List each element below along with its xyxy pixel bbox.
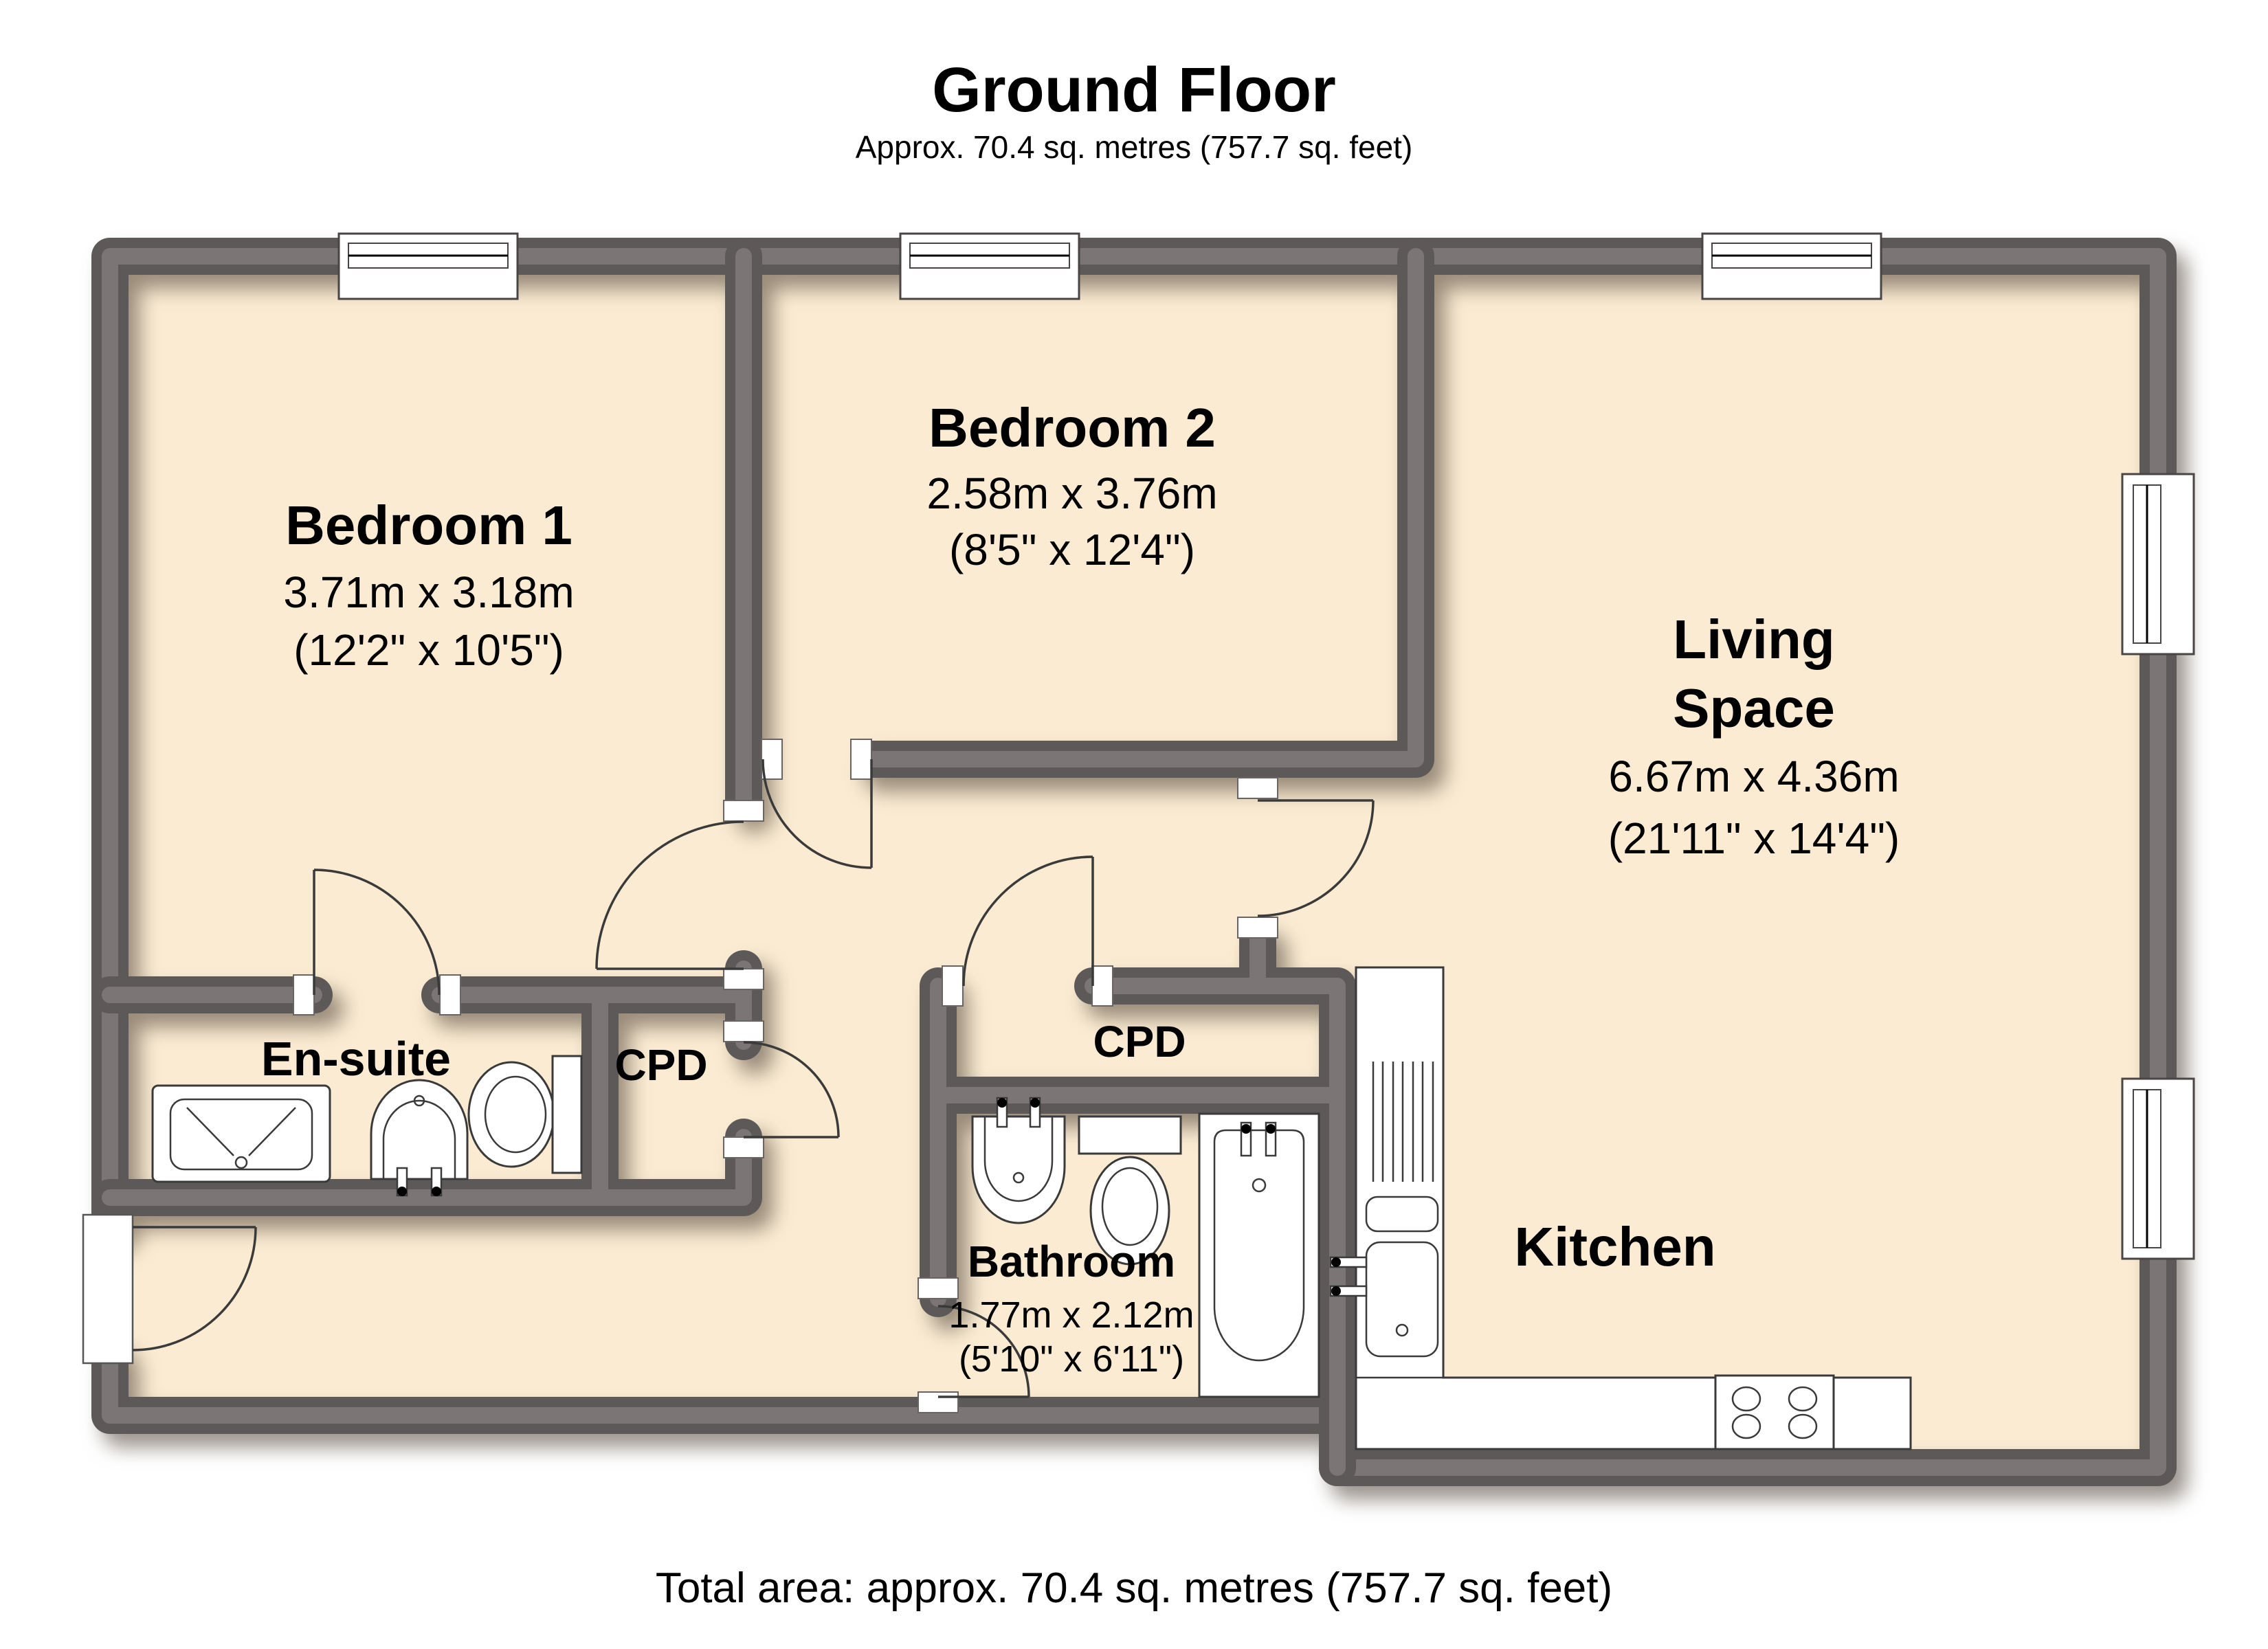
bathtub-icon	[1199, 1114, 1319, 1397]
room-dims-m: 6.67m x 4.36m	[1608, 752, 1899, 801]
window-icon	[2122, 1079, 2194, 1259]
page-title: Ground Floor	[932, 55, 1336, 125]
hob-icon	[1715, 1376, 1834, 1449]
jamb	[942, 966, 963, 1006]
room-name-line1: Living	[1673, 609, 1835, 670]
window-icon	[339, 234, 518, 299]
floorplan-canvas: Ground Floor Approx. 70.4 sq. metres (75…	[0, 0, 2268, 1649]
toilet-icon	[469, 1056, 581, 1173]
jamb	[440, 975, 460, 1015]
room-label-bedroom2: Bedroom 2 2.58m x 3.76m (8'5" x 12'4")	[926, 397, 1217, 574]
room-name: Bathroom	[968, 1237, 1175, 1286]
room-name: Bedroom 2	[929, 397, 1216, 458]
jamb	[724, 1021, 764, 1042]
room-name: Bedroom 1	[285, 495, 572, 556]
total-area-text: Total area: approx. 70.4 sq. metres (757…	[656, 1564, 1612, 1612]
jamb	[724, 969, 764, 989]
room-dims-ft: (8'5" x 12'4")	[949, 525, 1195, 574]
page-subtitle: Approx. 70.4 sq. metres (757.7 sq. feet)	[856, 129, 1413, 165]
basin-icon	[972, 1098, 1065, 1223]
room-name-line2: Space	[1673, 677, 1835, 739]
room-dims-ft: (5'10" x 6'11")	[959, 1338, 1184, 1380]
jamb	[1238, 778, 1278, 798]
jamb	[293, 975, 314, 1015]
jamb	[724, 1137, 764, 1158]
jamb	[851, 739, 871, 779]
room-dims-ft: (21'11" x 14'4")	[1608, 814, 1900, 863]
jamb	[1238, 917, 1278, 938]
room-label-cpd-left: CPD	[614, 1040, 707, 1090]
room-label-ensuite: En-suite	[261, 1032, 451, 1086]
room-dims-m: 2.58m x 3.76m	[926, 469, 1217, 518]
room-label-bedroom1: Bedroom 1 3.71m x 3.18m (12'2" x 10'5")	[283, 495, 574, 675]
window-icon	[900, 234, 1079, 299]
jamb	[918, 1392, 958, 1413]
window-icon	[1702, 234, 1881, 299]
jamb	[1092, 966, 1113, 1006]
window-icon	[2122, 474, 2194, 654]
room-label-kitchen: Kitchen	[1514, 1216, 1715, 1277]
shower-icon	[153, 1086, 330, 1182]
room-dims-ft: (12'2" x 10'5")	[293, 625, 564, 675]
jamb	[724, 800, 764, 821]
room-dims-m: 3.71m x 3.18m	[283, 568, 574, 617]
room-label-cpd-right: CPD	[1093, 1017, 1186, 1066]
basin-icon	[371, 1080, 467, 1196]
room-label-bathroom: Bathroom 1.77m x 2.12m (5'10" x 6'11")	[948, 1237, 1194, 1380]
room-dims-m: 1.77m x 2.12m	[948, 1294, 1194, 1336]
floorplan-page: Ground Floor Approx. 70.4 sq. metres (75…	[0, 0, 2268, 1649]
